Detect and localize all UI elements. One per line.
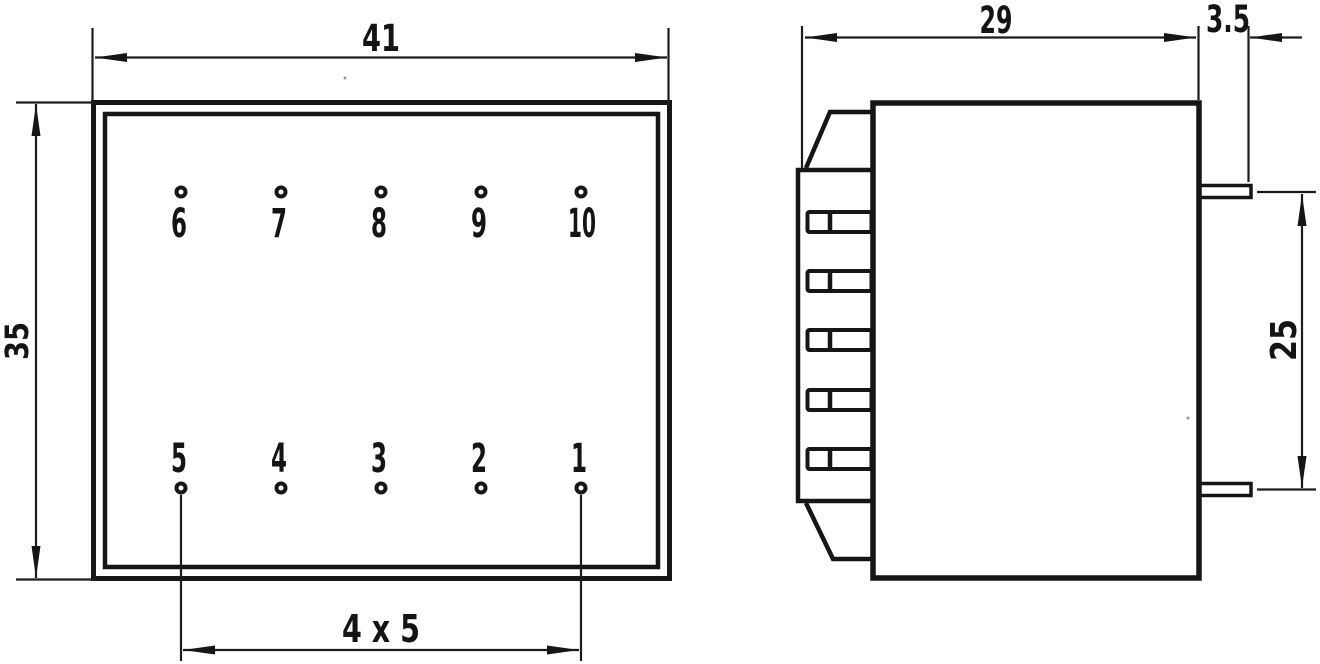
side-pin-bottom <box>1200 484 1251 496</box>
pin-slot <box>808 390 872 410</box>
dimension-value: 3.5 <box>1206 0 1250 41</box>
pin-slot <box>808 212 872 232</box>
dimension-value: 35 <box>0 322 36 360</box>
transformer-dimension-drawing: 6 7 8 9 10 5 4 3 2 1 41 <box>0 0 1320 664</box>
pin-number: 9 <box>471 201 487 247</box>
technical-drawing-canvas: 6 7 8 9 10 5 4 3 2 1 41 <box>0 0 1320 664</box>
side-pin-top <box>1200 186 1251 198</box>
dimension-value: 29 <box>980 0 1013 42</box>
dimension-value: 25 <box>1264 319 1305 361</box>
pin-marker <box>477 484 486 493</box>
slot-outline <box>808 390 872 410</box>
pin-number: 6 <box>171 201 187 247</box>
pin-number: 2 <box>471 436 487 482</box>
slot-outline <box>808 330 872 350</box>
pin-number: 5 <box>171 436 187 482</box>
slot-outline <box>808 449 872 469</box>
slot-outline <box>808 212 872 232</box>
pin-number: 10 <box>568 201 596 247</box>
pin-marker <box>377 188 386 197</box>
pin-marker <box>177 484 186 493</box>
dimension-value: 41 <box>362 17 400 60</box>
slot-outline <box>808 271 872 291</box>
pin-number: 1 <box>571 436 587 482</box>
pin-number: 3 <box>371 436 387 482</box>
pin-marker <box>477 188 486 197</box>
scan-speck <box>1187 417 1190 420</box>
pin-marker <box>277 188 286 197</box>
pin-slot <box>808 330 872 350</box>
pin-number: 8 <box>371 201 387 247</box>
pin-marker <box>377 484 386 493</box>
pin-number: 4 <box>271 436 287 482</box>
pin-marker <box>577 484 586 493</box>
dimension-value: 4 x 5 <box>342 607 420 651</box>
pin-number: 7 <box>271 201 287 247</box>
pin-slot <box>808 449 872 469</box>
pin-marker <box>277 484 286 493</box>
pin-slot <box>808 271 872 291</box>
pin-marker <box>577 188 586 197</box>
scan-speck <box>344 77 347 80</box>
pin-marker <box>177 188 186 197</box>
